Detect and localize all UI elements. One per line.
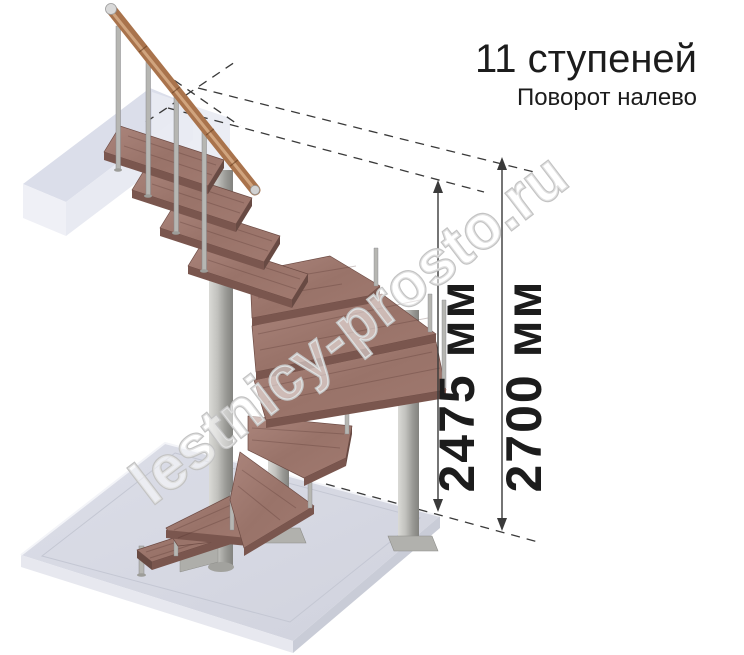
dimension-label-2700: 2700 мм — [496, 279, 552, 492]
staircase-illustration: 2475 мм 2700 мм lestnicy-prosto.ru 11 ст… — [0, 0, 744, 655]
baluster-rail-4-foot — [200, 269, 208, 272]
baluster-rail-1-foot — [114, 168, 122, 171]
baluster-rail-2-foot — [144, 194, 152, 197]
title-block: 11 ступеней Поворот налево — [475, 37, 697, 111]
handrail-end-cap — [251, 186, 260, 195]
baluster-rail-2 — [146, 57, 151, 196]
dimension-label-2475: 2475 мм — [429, 279, 485, 492]
arrow-down-2475 — [433, 499, 443, 512]
baluster-rail-4 — [202, 127, 207, 271]
diagram-subtitle: Поворот налево — [517, 84, 697, 111]
floor-post-foot — [137, 573, 146, 577]
baluster-rail-3 — [174, 92, 179, 233]
handrail-top-cap — [106, 4, 117, 15]
right-column-plate — [388, 536, 438, 551]
diagram-title: 11 ступеней — [475, 37, 697, 81]
arrow-down-2700 — [497, 518, 507, 531]
stair-diagram-canvas: 2475 мм 2700 мм lestnicy-prosto.ru 11 ст… — [0, 0, 744, 655]
baluster-rail-3-foot — [172, 231, 180, 234]
baluster-rail-1 — [116, 26, 121, 170]
arrow-up-2475 — [433, 180, 443, 193]
